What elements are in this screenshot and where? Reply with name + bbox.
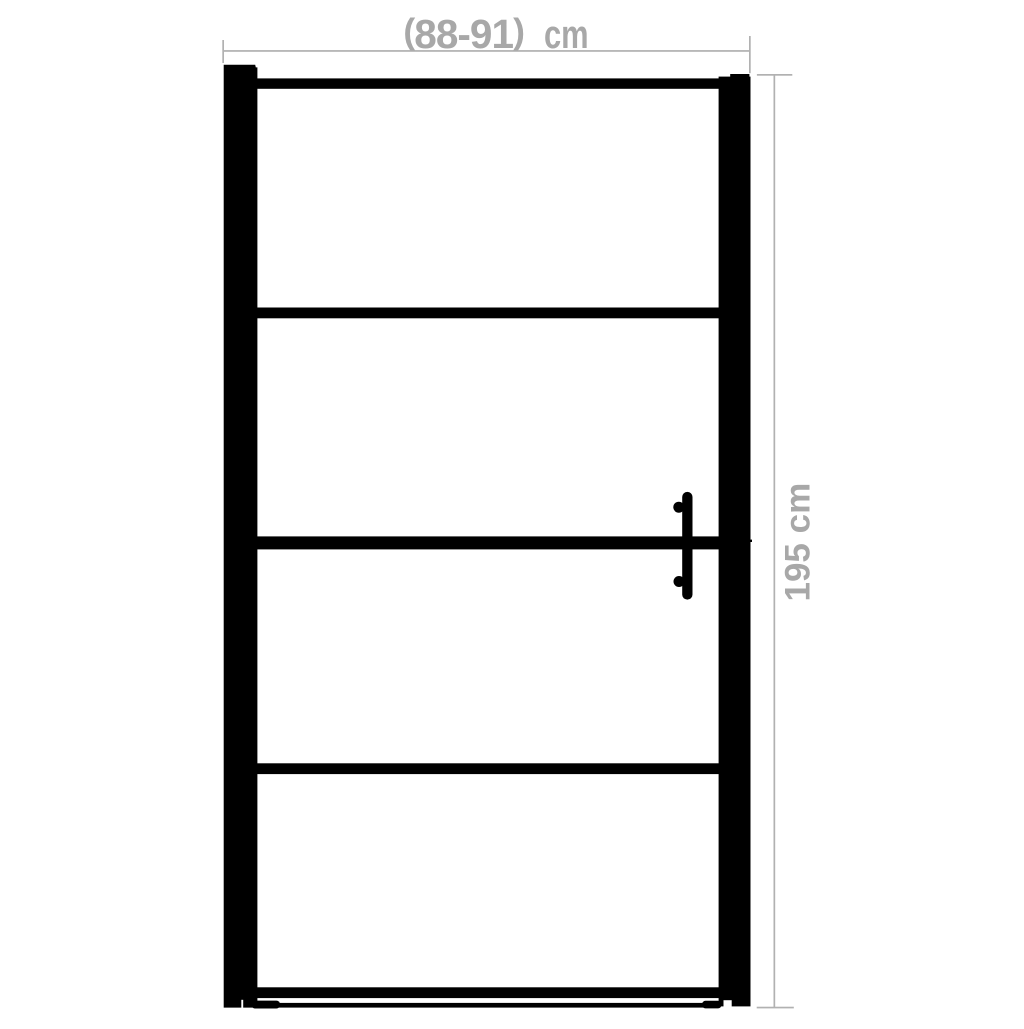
svg-text:(88-91): (88-91)	[403, 11, 525, 57]
svg-text:195 cm: 195 cm	[779, 483, 818, 602]
svg-text:cm: cm	[544, 13, 589, 57]
